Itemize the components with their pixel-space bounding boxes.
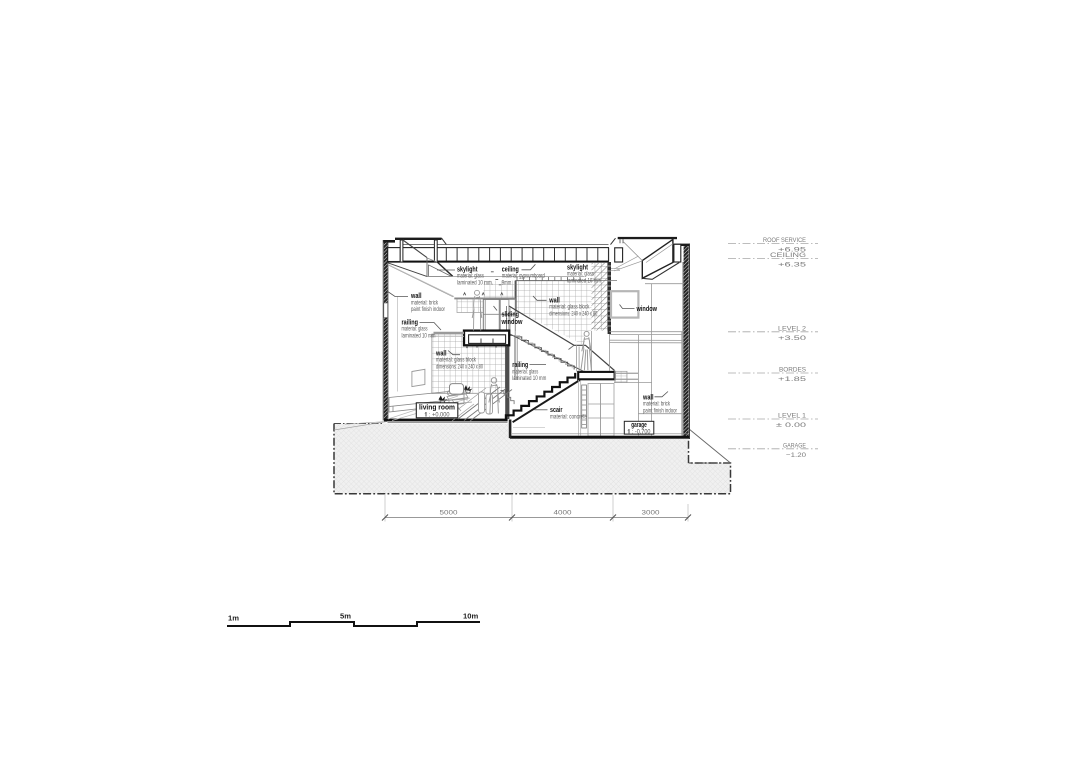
svg-text:+6.35: +6.35 [778, 262, 806, 269]
svg-text:LEVEL 1: LEVEL 1 [778, 413, 806, 420]
svg-text:sliding: sliding [502, 312, 520, 319]
svg-text:LEVEL 2: LEVEL 2 [778, 326, 806, 333]
svg-text:garage: garage [631, 422, 647, 429]
svg-text:laminated 10 mm: laminated 10 mm [512, 375, 546, 382]
svg-text:window: window [636, 306, 658, 313]
svg-text:fl : -0.700: fl : -0.700 [628, 429, 652, 435]
svg-text:fl : +0.000: fl : +0.000 [425, 412, 451, 419]
svg-text:± 0.00: ± 0.00 [776, 422, 806, 429]
svg-text:CEILING: CEILING [770, 252, 806, 259]
svg-text:3000: 3000 [642, 510, 660, 517]
svg-text:dimensions: 240 x 240 x 80: dimensions: 240 x 240 x 80 [549, 311, 597, 318]
svg-text:laminated 10 mm: laminated 10 mm [402, 333, 436, 340]
svg-text:4000: 4000 [554, 510, 572, 517]
svg-text:paint finish indoor: paint finish indoor [411, 306, 445, 313]
svg-text:window: window [501, 319, 523, 326]
svg-text:GARAGE: GARAGE [783, 442, 806, 449]
svg-text:+3.50: +3.50 [778, 335, 806, 342]
svg-text:10m: 10m [463, 612, 478, 621]
svg-text:−1.20: −1.20 [786, 452, 806, 459]
svg-text:laminated 10 mm: laminated 10 mm [567, 277, 601, 284]
svg-text:laminated 10 mm.: laminated 10 mm. [457, 279, 493, 286]
svg-text:BORDES: BORDES [779, 367, 806, 374]
svg-text:material: concrete: material: concrete [550, 414, 587, 421]
svg-text:paint finish indoor: paint finish indoor [643, 407, 677, 414]
svg-text:ROOF SERVICE: ROOF SERVICE [763, 237, 806, 244]
svg-text:1m: 1m [228, 614, 239, 623]
svg-text:5m: 5m [340, 612, 351, 621]
svg-text:living room: living room [419, 403, 455, 412]
svg-text:dimensions: 240 x 240 x 80: dimensions: 240 x 240 x 80 [436, 364, 483, 371]
svg-text:5000: 5000 [440, 510, 458, 517]
svg-text:9mm: 9mm [502, 279, 512, 286]
svg-text:+1.85: +1.85 [778, 376, 806, 383]
